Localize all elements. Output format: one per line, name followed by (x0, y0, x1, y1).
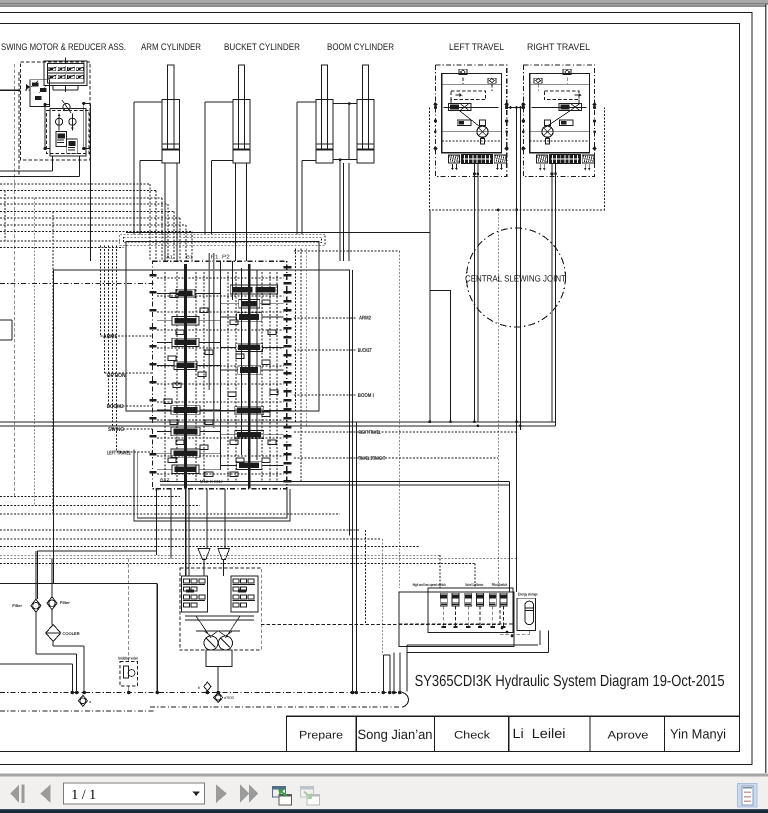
svg-text:Song Jian’an: Song Jian’an (358, 727, 433, 742)
svg-text:1 / 1: 1 / 1 (71, 788, 96, 803)
svg-text:Yin Manyi: Yin Manyi (670, 727, 726, 742)
svg-text:SWING MOTOR & REDUCER ASS.: SWING MOTOR & REDUCER ASS. (1, 42, 126, 53)
svg-text:TRAVEL STRAIGHT: TRAVEL STRAIGHT (358, 456, 385, 462)
svg-text:Aprove: Aprove (608, 730, 649, 742)
svg-text:Check: Check (454, 730, 491, 742)
svg-text:Pilot Switch: Pilot Switch (492, 582, 508, 587)
svg-text:Filter: Filter (12, 603, 22, 608)
svg-text:BUCKET: BUCKET (358, 348, 372, 354)
svg-text:Swivel Confluence: Swivel Confluence (465, 582, 483, 587)
svg-text:Pr: Pr (155, 487, 160, 492)
svg-text:High and low speed switch: High and low speed switch (413, 582, 446, 587)
svg-text:Li Leilei: Li Leilei (513, 726, 566, 741)
svg-text:ARM1: ARM1 (103, 334, 117, 340)
svg-text:SY365CDI3K Hydraulic System Di: SY365CDI3K Hydraulic System Diagram 19-O… (415, 673, 725, 690)
svg-text:A1: A1 (166, 255, 174, 260)
svg-text:BUCKET CYLINDER: BUCKET CYLINDER (224, 42, 300, 53)
svg-text:A12: A12 (160, 477, 171, 482)
svg-text:Prepare: Prepare (299, 730, 343, 742)
svg-text:BOOM2: BOOM2 (107, 404, 124, 410)
svg-text:B1: B1 (186, 255, 194, 260)
svg-text:M12 X M4J: M12 X M4J (200, 479, 223, 484)
svg-text:Energy storage: Energy storage (518, 591, 538, 596)
svg-text:ARM2: ARM2 (359, 316, 371, 322)
svg-text:Filter: Filter (60, 600, 70, 605)
svg-text:RIGHT TRAVEL: RIGHT TRAVEL (359, 430, 381, 436)
svg-text:CENTRAL SLEWING JOINT: CENTRAL SLEWING JOINT (465, 274, 566, 284)
svg-text:COOLER: COOLER (63, 631, 80, 636)
svg-text:LEFT TRAVEL: LEFT TRAVEL (107, 451, 131, 457)
svg-text:ARM CYLINDER: ARM CYLINDER (141, 42, 201, 53)
svg-text:SWING: SWING (108, 427, 124, 433)
svg-text:a’500: a’500 (224, 695, 235, 700)
svg-text:RIGHT TRAVEL: RIGHT TRAVEL (527, 42, 590, 53)
svg-text:LEFT TRAVEL: LEFT TRAVEL (449, 42, 504, 53)
svg-text:BOOM I: BOOM I (358, 393, 374, 399)
svg-text:BOOM CYLINDER: BOOM CYLINDER (327, 42, 394, 53)
